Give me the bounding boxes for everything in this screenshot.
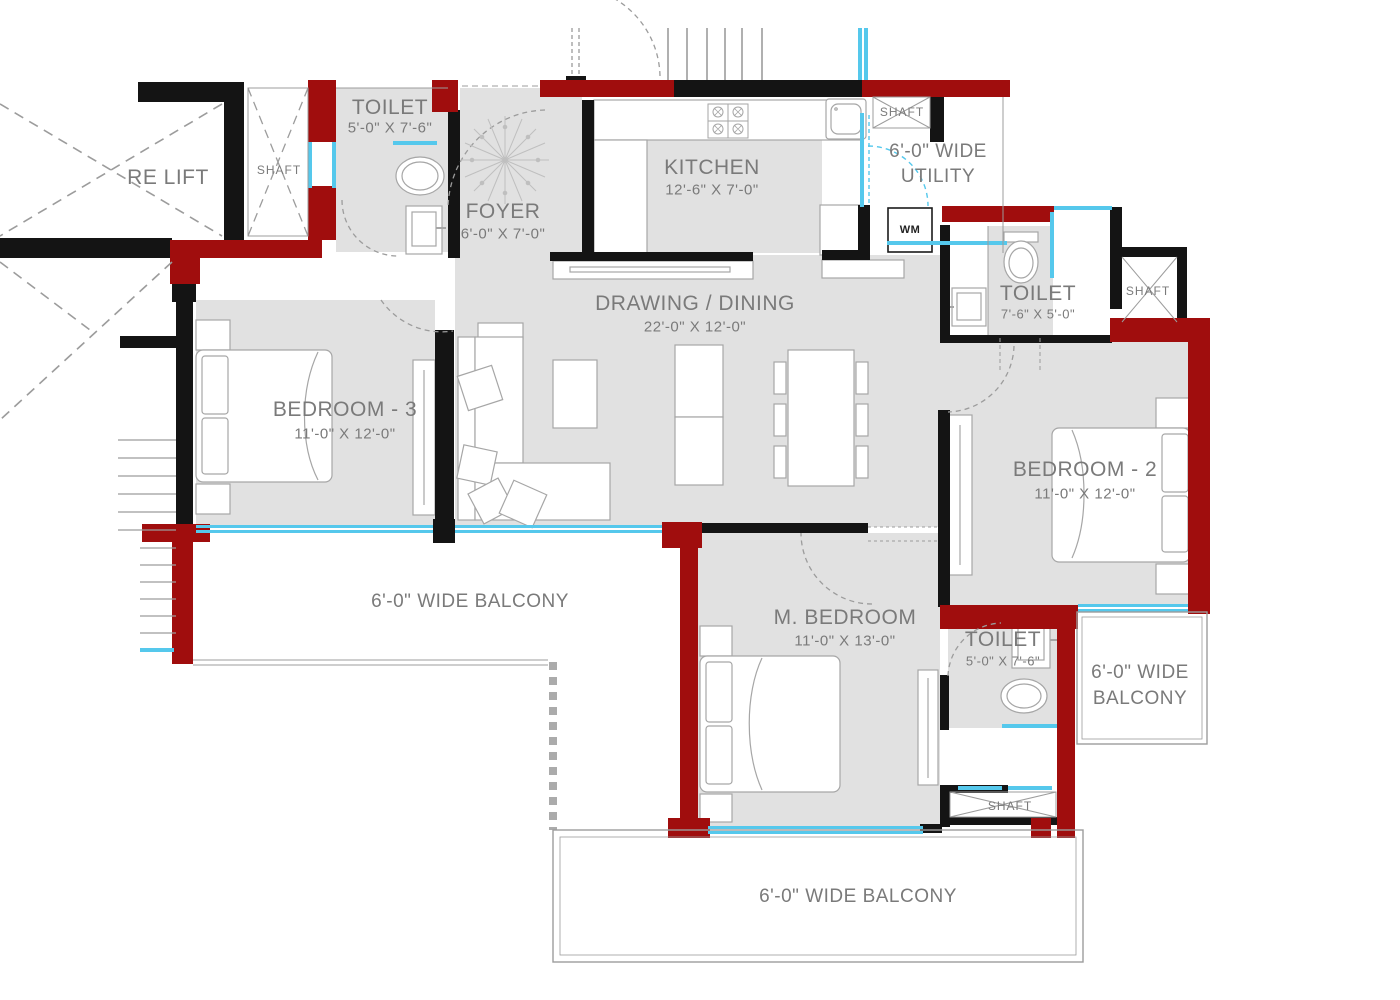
room-dims-master-bedroom: 11'-0" X 13'-0" xyxy=(794,633,895,650)
bed-icon-master xyxy=(700,626,840,822)
console-shelf-icon xyxy=(553,260,904,279)
stove-icon xyxy=(708,104,748,138)
room-label-utility-2: UTILITY xyxy=(901,166,975,188)
room-dims-foyer: 6'-0" X 7'-0" xyxy=(461,226,546,243)
floor-plan-canvas xyxy=(0,0,1400,1000)
room-dims-toilet-master: 5'-0" X 7'-6" xyxy=(966,654,1040,669)
room-dims-kitchen: 12'-6" X 7'-0" xyxy=(665,182,758,199)
chandelier-icon xyxy=(461,116,549,204)
coffee-table-icon xyxy=(553,360,597,428)
room-dims-drawing-dining: 22'-0" X 12'-0" xyxy=(644,319,746,336)
dining-table-icon xyxy=(774,350,868,486)
room-label-bedroom-3: BEDROOM - 3 xyxy=(273,398,417,422)
room-label-kitchen: KITCHEN xyxy=(664,156,760,180)
room-label-balcony-bottom: 6'-0" WIDE BALCONY xyxy=(759,886,957,908)
room-dims-toilet-right: 7'-6" X 5'-0" xyxy=(1001,307,1075,322)
room-label-drawing-dining: DRAWING / DINING xyxy=(595,292,795,316)
room-label-foyer: FOYER xyxy=(466,200,541,224)
room-label-shaft-utility: SHAFT xyxy=(880,105,924,119)
room-label-utility-1: 6'-0" WIDE xyxy=(889,141,987,163)
sink-icon-toilet-right xyxy=(948,288,986,326)
wardrobe-icon-bedroom3 xyxy=(413,360,435,515)
room-label-master-bedroom: M. BEDROOM xyxy=(774,606,917,630)
room-dims-bedroom-3: 11'-0" X 12'-0" xyxy=(294,426,395,443)
room-label-shaft-right: SHAFT xyxy=(1126,284,1170,298)
wc-icon-toilet-master xyxy=(1001,679,1047,713)
wardrobe-icon-bedroom2 xyxy=(948,415,972,575)
room-label-fire-lift: RE LIFT xyxy=(127,166,209,190)
room-label-bedroom-2: BEDROOM - 2 xyxy=(1013,458,1157,482)
room-label-balcony-right-2: BALCONY xyxy=(1093,688,1187,710)
wc-icon-toilet-top xyxy=(396,157,444,195)
room-label-shaft-bottom: SHAFT xyxy=(988,799,1032,813)
room-dims-toilet-top: 5'-0" X 7'-6" xyxy=(348,120,433,137)
room-label-toilet-top: TOILET xyxy=(352,96,428,120)
room-label-shaft-top-left: SHAFT xyxy=(257,163,301,177)
wardrobe-icon-master xyxy=(918,670,938,785)
room-label-balcony-left: 6'-0" WIDE BALCONY xyxy=(371,591,569,613)
room-dims-bedroom-2: 11'-0" X 12'-0" xyxy=(1034,486,1135,503)
washing-machine-label: WM xyxy=(900,224,921,236)
room-label-toilet-master: TOILET xyxy=(965,628,1041,652)
room-label-toilet-right: TOILET xyxy=(1000,282,1076,306)
sink-icon-toilet-top xyxy=(406,206,446,254)
wc-icon-toilet-right xyxy=(1004,232,1038,283)
floor-plan: RE LIFT SHAFT TOILET 5'-0" X 7'-6" FOYER… xyxy=(0,0,1400,1000)
room-label-balcony-right-1: 6'-0" WIDE xyxy=(1091,662,1189,684)
tv-console-icon xyxy=(675,345,723,485)
